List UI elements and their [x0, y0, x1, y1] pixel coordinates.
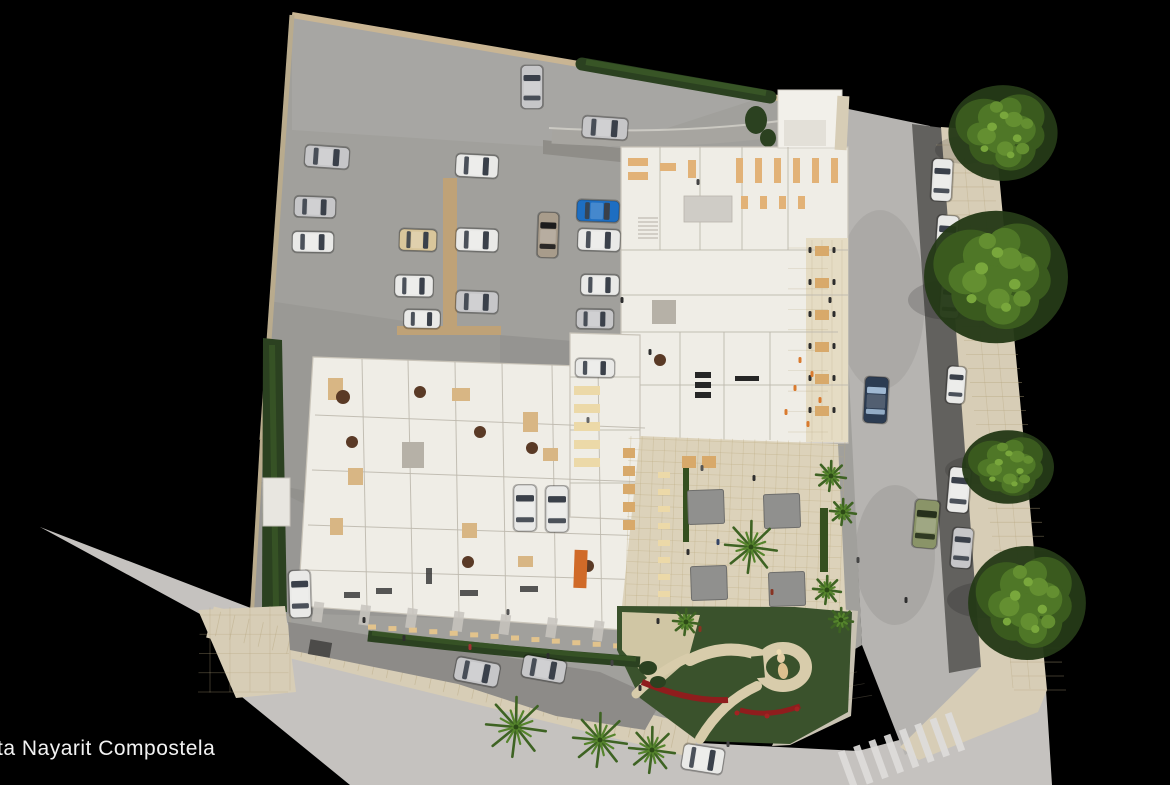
- lounge-chair: [658, 523, 670, 529]
- dining-table: [526, 442, 538, 454]
- dining-table: [654, 354, 666, 366]
- chair: [833, 343, 836, 349]
- bed: [330, 518, 343, 535]
- lounge-chair: [658, 540, 670, 546]
- pavilion: [687, 489, 724, 524]
- car: [303, 143, 351, 170]
- amenity-table: [574, 386, 600, 395]
- courtyard-table: [702, 456, 716, 468]
- flower-bed: [735, 711, 740, 716]
- lounge-chair: [658, 591, 670, 597]
- bed: [518, 556, 533, 567]
- shop-shelf: [344, 592, 360, 598]
- hedge-north: [745, 106, 767, 134]
- person: [753, 475, 756, 481]
- car: [576, 198, 621, 224]
- bed: [452, 388, 470, 401]
- car: [577, 227, 622, 253]
- bed: [523, 412, 538, 432]
- amenity-table: [574, 440, 600, 449]
- cafe-chair: [794, 385, 797, 391]
- car: [910, 498, 941, 550]
- chair: [809, 247, 812, 253]
- car: [394, 274, 434, 299]
- terrace-table: [815, 406, 829, 416]
- lobby-furniture: [628, 172, 648, 180]
- pavilion: [690, 565, 727, 600]
- terrace-table: [815, 246, 829, 256]
- car: [455, 289, 500, 315]
- street-tree: [968, 546, 1086, 660]
- office-table: [760, 196, 767, 209]
- person: [621, 297, 624, 303]
- lobby-furniture: [628, 158, 648, 166]
- car: [520, 65, 544, 110]
- lounge-chair: [658, 472, 670, 478]
- lounge-chair: [658, 489, 670, 495]
- gym-equipment: [695, 382, 711, 388]
- plaza-planter: [820, 508, 828, 572]
- street-tree: [962, 430, 1054, 504]
- shop-shelf: [520, 586, 538, 592]
- statue: [777, 649, 782, 655]
- bed: [462, 523, 477, 538]
- chair: [809, 343, 812, 349]
- car: [398, 227, 438, 252]
- dining-table: [474, 426, 486, 438]
- person: [639, 685, 642, 691]
- car: [545, 485, 570, 533]
- dining-table: [462, 556, 474, 568]
- dining-table: [336, 390, 350, 404]
- person: [687, 549, 690, 555]
- car: [455, 227, 500, 254]
- chair: [833, 279, 836, 285]
- cafe-chair: [811, 371, 814, 377]
- chair: [833, 407, 836, 413]
- person: [717, 539, 720, 545]
- person: [905, 597, 908, 603]
- person: [857, 557, 860, 563]
- dining-table: [414, 386, 426, 398]
- dining-table: [346, 436, 358, 448]
- hedge-south: [650, 676, 666, 688]
- gym-equipment: [695, 392, 711, 398]
- pavilion: [763, 493, 800, 528]
- hedge-south: [639, 661, 657, 675]
- car: [862, 375, 890, 424]
- elevator-core: [652, 300, 676, 324]
- person: [697, 179, 700, 185]
- shop-counter: [573, 550, 587, 588]
- gym-equipment: [695, 372, 711, 378]
- cafe-chair: [799, 357, 802, 363]
- cafe-table: [623, 502, 635, 512]
- flower-bed: [795, 707, 800, 712]
- hedge-west-highlight: [272, 345, 276, 608]
- scene-svg: [0, 0, 1170, 785]
- lobby-furniture: [660, 163, 676, 171]
- person: [829, 297, 832, 303]
- rooftop-block-lower: [784, 120, 826, 146]
- lounge-chair: [658, 557, 670, 563]
- lobby-furniture: [688, 160, 696, 178]
- amenity-table: [574, 458, 600, 467]
- shop-shelf: [426, 568, 432, 584]
- caption: ta Nayarit Compostela: [0, 737, 215, 761]
- loop-gap: [751, 656, 765, 679]
- elevator-core: [402, 442, 424, 468]
- terrace-table: [815, 374, 829, 384]
- entry-structure: [263, 478, 290, 526]
- car: [287, 569, 313, 619]
- roof-slab: [684, 196, 732, 222]
- car: [949, 526, 976, 570]
- cafe-chair: [785, 409, 788, 415]
- person: [727, 741, 730, 747]
- gym-equipment: [735, 376, 759, 381]
- car: [944, 365, 968, 405]
- person: [403, 635, 406, 641]
- car: [454, 152, 499, 179]
- person: [469, 644, 472, 650]
- bed: [543, 448, 558, 461]
- car: [293, 195, 337, 219]
- terrace-table: [815, 310, 829, 320]
- car: [536, 211, 561, 259]
- cafe-table: [623, 466, 635, 476]
- car: [580, 273, 620, 297]
- lounge-chair: [658, 506, 670, 512]
- bed: [348, 468, 363, 485]
- person: [657, 618, 660, 624]
- car: [574, 357, 615, 379]
- chair: [833, 375, 836, 381]
- person: [587, 417, 590, 423]
- cafe-table: [623, 484, 635, 494]
- person: [363, 617, 366, 623]
- office-table: [779, 196, 786, 209]
- person: [701, 465, 704, 471]
- person: [547, 653, 550, 659]
- office-desk: [774, 158, 781, 183]
- office-desk: [793, 158, 800, 183]
- car: [291, 230, 334, 254]
- office-table: [741, 196, 748, 209]
- office-desk: [831, 158, 838, 183]
- car: [575, 308, 614, 331]
- lounge-chair: [658, 574, 670, 580]
- courtyard-table: [682, 456, 696, 468]
- chair: [833, 311, 836, 317]
- cafe-table: [623, 520, 635, 530]
- terrace-table: [815, 278, 829, 288]
- cafe-chair: [819, 397, 822, 403]
- hedge-north: [760, 129, 776, 147]
- shop-shelf: [376, 588, 392, 594]
- site-plan-render: ta Nayarit Compostela: [0, 0, 1170, 785]
- person: [611, 660, 614, 666]
- flower-bed: [765, 714, 770, 719]
- person: [649, 349, 652, 355]
- car: [513, 484, 538, 532]
- chair: [833, 247, 836, 253]
- chair: [809, 311, 812, 317]
- car: [929, 157, 954, 202]
- person: [507, 609, 510, 615]
- office-table: [798, 196, 805, 209]
- street-tree: [924, 211, 1068, 343]
- car: [581, 114, 630, 141]
- pavilion: [768, 571, 805, 606]
- shop-shelf: [460, 590, 478, 596]
- car: [403, 308, 441, 330]
- office-desk: [755, 158, 762, 183]
- person: [771, 589, 774, 595]
- person: [699, 626, 702, 632]
- chair: [809, 407, 812, 413]
- office-desk: [812, 158, 819, 183]
- terrace-table: [815, 342, 829, 352]
- office-desk: [736, 158, 743, 183]
- amenity-table: [574, 422, 600, 431]
- amenity-table: [574, 404, 600, 413]
- chair: [809, 279, 812, 285]
- cafe-chair: [807, 421, 810, 427]
- cafe-table: [623, 448, 635, 458]
- street-tree: [948, 85, 1057, 181]
